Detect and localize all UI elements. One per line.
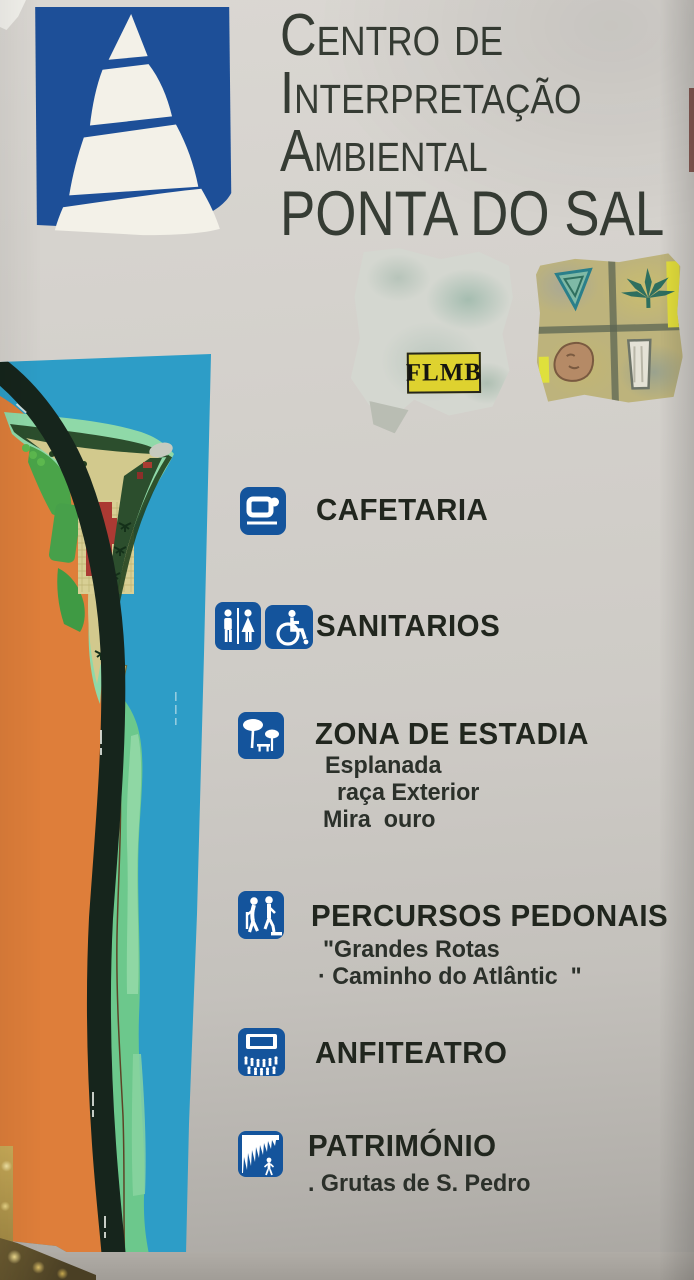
inverted-triangle-icon [556,269,591,308]
cannabis-leaf-icon [620,267,675,308]
title-line-3: Ambiental [280,122,673,180]
site-map [0,354,216,1272]
flmb-sticker-label: FLMB [407,352,481,394]
legend-sub: Mira ouro [323,806,436,833]
picnic-area-icon [238,712,284,759]
cave-icon [238,1131,283,1177]
sign-photo: Centro de Interpretação Ambiental PONTA … [0,0,694,1280]
amphitheater-icon [238,1028,285,1076]
sanitarios-icons [215,602,313,650]
legend-label: SANITARIOS [316,608,500,644]
sign-bottom-edge [0,1252,694,1280]
legend-sub: . Grutas de S. Pedro [308,1170,531,1197]
legend-label: PATRIMÓNIO [308,1128,497,1164]
restroom-icon [215,602,261,650]
title-line-4: PONTA DO SAL [280,182,664,246]
title-line-2: Interpretação [280,64,673,122]
title-line-1: Centro de [280,6,673,64]
torn-sticker: FLMB [350,247,514,417]
legend-label: ANFITEATRO [315,1035,507,1071]
legend-label: ZONA DE ESTADIA [315,716,589,752]
glass-icon [628,340,651,389]
legend-label: CAFETARIA [316,492,488,528]
legend-sub: Esplanada [325,752,441,779]
face-icon [554,342,594,381]
legend-sub: · Caminho do Atlântic " [318,963,582,990]
worn-corner-patch [0,0,26,30]
center-logo [25,3,239,237]
wheelchair-icon [265,605,313,649]
legend-label: PERCURSOS PEDONAIS [311,898,668,934]
grid-sticker [534,253,684,405]
site-map-graphic [0,354,216,1272]
legend-sub: raça Exterior [337,779,479,806]
spiral-cone-logo-icon [25,3,239,237]
legend-sub: "Grandes Rotas [323,936,500,963]
sticker-symbols [534,253,684,405]
coffee-cup-icon [240,487,286,535]
sign-title: Centro de Interpretação Ambiental PONTA … [280,6,694,246]
walking-people-icon [238,891,284,939]
